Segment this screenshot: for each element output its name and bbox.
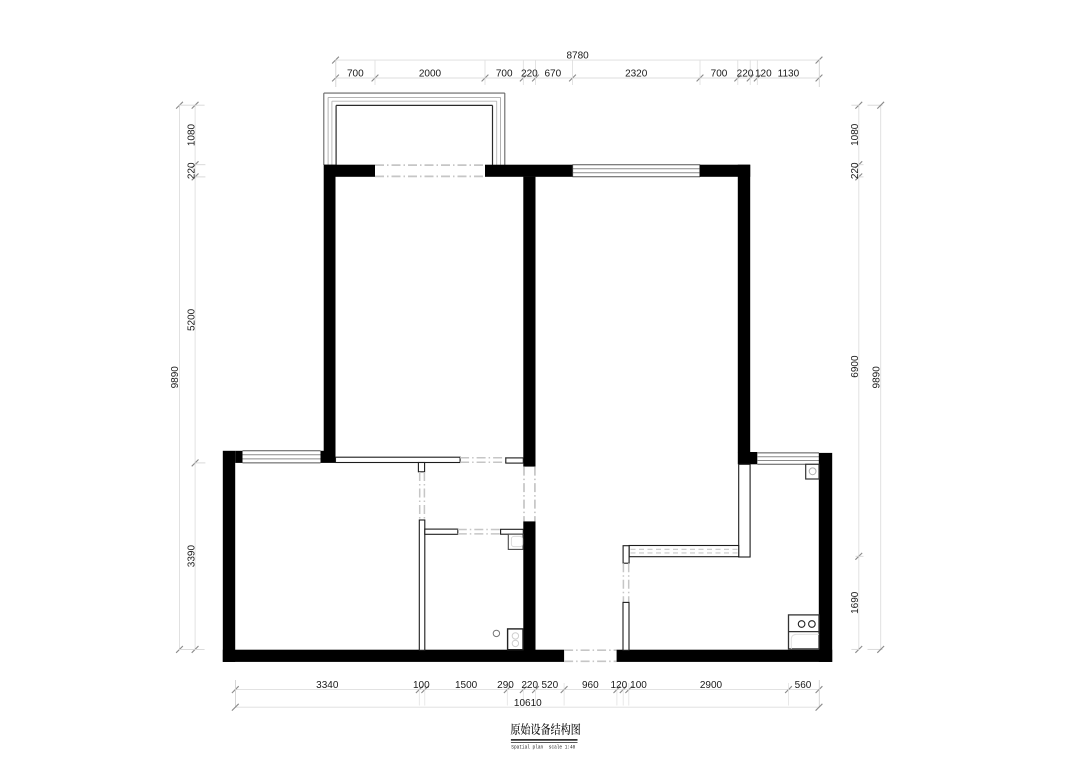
svg-text:100: 100	[413, 680, 430, 691]
svg-text:2320: 2320	[625, 68, 648, 79]
svg-text:5200: 5200	[186, 308, 197, 331]
svg-text:960: 960	[582, 680, 599, 691]
svg-text:8780: 8780	[566, 51, 589, 62]
svg-text:220: 220	[186, 162, 197, 179]
svg-text:700: 700	[347, 68, 364, 79]
svg-text:1080: 1080	[186, 123, 197, 146]
svg-text:220: 220	[521, 68, 538, 79]
svg-text:700: 700	[711, 68, 728, 79]
svg-text:700: 700	[496, 68, 513, 79]
svg-text:2900: 2900	[700, 680, 723, 691]
svg-text:3390: 3390	[186, 545, 197, 568]
svg-text:100: 100	[630, 680, 647, 691]
svg-text:1130: 1130	[778, 68, 800, 79]
svg-text:1500: 1500	[455, 680, 478, 691]
svg-text:220: 220	[737, 68, 754, 79]
svg-text:Spatial plan: Spatial plan	[511, 744, 543, 751]
svg-text:120: 120	[611, 680, 628, 691]
svg-text:9890: 9890	[872, 366, 883, 389]
svg-text:670: 670	[544, 68, 561, 79]
svg-text:scale 1:40: scale 1:40	[549, 744, 576, 751]
svg-text:6900: 6900	[850, 355, 861, 378]
svg-text:520: 520	[541, 680, 558, 691]
svg-text:1690: 1690	[850, 591, 861, 614]
svg-text:10610: 10610	[514, 698, 542, 709]
svg-text:3340: 3340	[316, 680, 339, 691]
svg-text:220: 220	[850, 162, 861, 179]
svg-text:1080: 1080	[850, 123, 861, 146]
svg-text:9890: 9890	[170, 366, 181, 389]
svg-text:2000: 2000	[419, 68, 442, 79]
svg-text:220: 220	[521, 680, 538, 691]
svg-text:560: 560	[795, 680, 812, 691]
svg-text:290: 290	[497, 680, 514, 691]
svg-text:120: 120	[755, 68, 772, 79]
